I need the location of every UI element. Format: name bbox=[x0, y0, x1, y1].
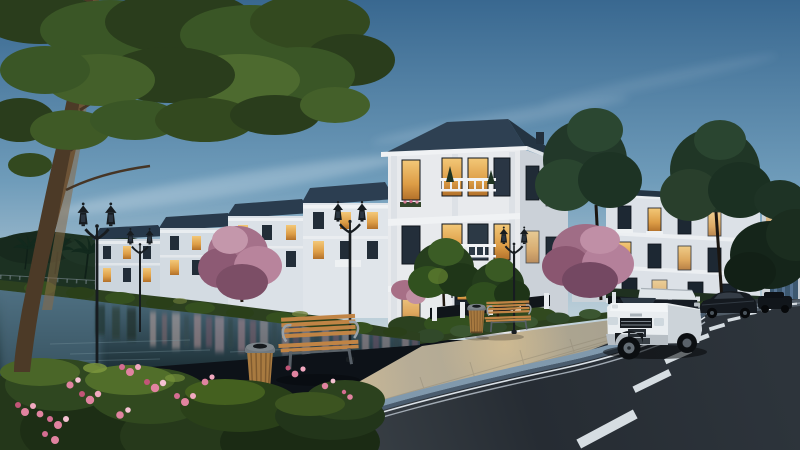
suv-headlight-right bbox=[654, 318, 664, 326]
balcony-balustrade bbox=[335, 260, 361, 267]
suv-grille bbox=[620, 318, 652, 328]
suv-headlight-left bbox=[608, 317, 618, 325]
balcony-balustrade bbox=[646, 231, 663, 235]
flower-bushes bbox=[0, 358, 385, 450]
balcony-balustrade bbox=[616, 229, 633, 233]
villa-dusk-render bbox=[0, 0, 800, 450]
suv-hood bbox=[610, 303, 668, 312]
suv-mirror bbox=[612, 305, 618, 309]
suv-mirror bbox=[694, 303, 700, 307]
scene-svg bbox=[0, 0, 800, 450]
suv-badge bbox=[630, 314, 642, 317]
chimney bbox=[536, 132, 544, 144]
